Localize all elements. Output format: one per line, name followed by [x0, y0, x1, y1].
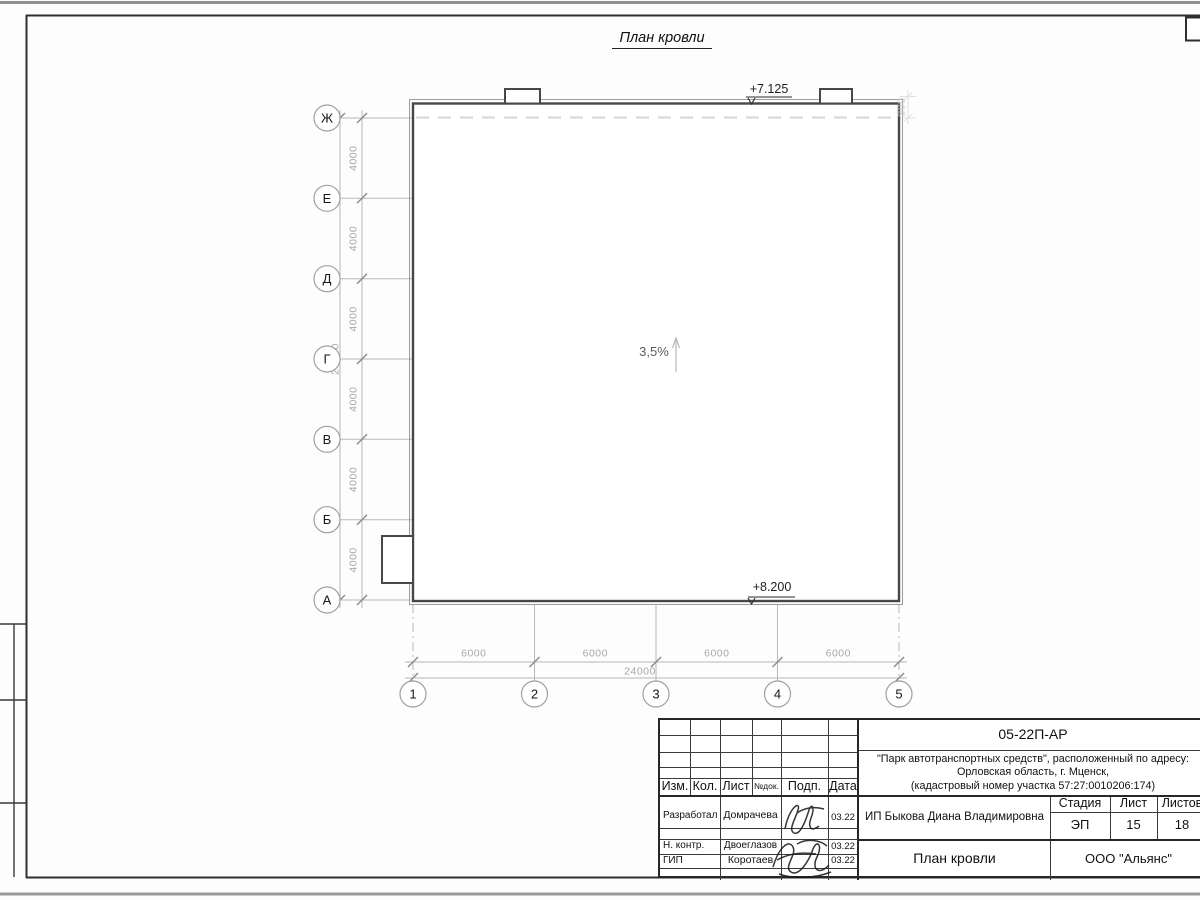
- tb-date-developed: 03.22: [828, 808, 858, 828]
- dim-4000: 4000: [348, 226, 360, 251]
- tb-project-description: "Парк автотранспортных средств", располо…: [859, 750, 1200, 796]
- tb-role-ncontrol: Н. контр.: [660, 839, 720, 854]
- tb-col-ndok: №док.: [752, 778, 781, 795]
- title-block: Изм. Кол. Лист №док. Подп. Дата 05-22П-А…: [658, 718, 1200, 878]
- tb-sheet-title: План кровли: [859, 840, 1050, 878]
- elevation-top-value: +7.125: [750, 82, 789, 96]
- tb-line: [660, 767, 858, 768]
- dim-6000: 6000: [461, 648, 486, 660]
- tb-sheets-label: Листов: [1157, 796, 1200, 812]
- side-projection: [382, 536, 413, 583]
- tb-company: ООО "Альянс": [1050, 840, 1200, 878]
- axis-label: 2: [531, 687, 538, 702]
- tb-line: [660, 752, 858, 753]
- dim-4000: 4000: [348, 467, 360, 492]
- tb-col-list: Лист: [720, 778, 752, 795]
- tb-doc-number: 05-22П-АР: [859, 720, 1200, 750]
- axis-label: А: [323, 593, 332, 608]
- tb-sheet-value: 15: [1110, 812, 1157, 839]
- project-line-1: "Парк автотранспортных средств", располо…: [877, 753, 1189, 766]
- bottom-dimension-lines: [405, 604, 907, 681]
- slope-value: 3,5%: [639, 344, 669, 359]
- dim-6000: 6000: [704, 648, 729, 660]
- dim-4000: 4000: [348, 547, 360, 572]
- project-line-2: Орловская область, г. Мценск,: [957, 766, 1109, 779]
- tb-role-developed: Разработал: [660, 804, 720, 828]
- dim-6000: 6000: [826, 648, 851, 660]
- elevation-bottom-value: +8.200: [753, 580, 792, 594]
- signature-developed: [778, 798, 830, 838]
- axis-label: Е: [323, 191, 332, 206]
- dim-4000: 4000: [348, 146, 360, 171]
- axis-label: 4: [774, 687, 781, 702]
- roof-vent-left: [505, 89, 540, 104]
- signature-gip: [768, 834, 840, 880]
- axis-label: Г: [323, 352, 330, 367]
- roof-vent-right: [820, 89, 852, 104]
- tb-name-developed: Домрачева: [720, 804, 781, 828]
- tb-col-kol: Кол.: [690, 778, 720, 795]
- elevation-mark-top: +7.125: [746, 82, 792, 104]
- column-axis-markers: 1 2 3 4 5: [400, 681, 912, 707]
- tb-col-podp: Подп.: [781, 778, 828, 795]
- axis-label: Б: [323, 512, 332, 527]
- axis-label: В: [323, 432, 332, 447]
- axis-label: 3: [652, 687, 659, 702]
- tb-sheets-value: 18: [1157, 812, 1200, 839]
- drawing-title: План кровли: [612, 30, 712, 49]
- tb-stage-label: Стадия: [1050, 796, 1110, 812]
- tb-line: [660, 735, 858, 736]
- tb-sheet-label: Лист: [1110, 796, 1157, 812]
- tb-client: ИП Быкова Диана Владимировна: [859, 796, 1050, 839]
- row-axis-markers: Ж Е Д Г В Б А: [314, 105, 340, 613]
- tb-col-izm: Изм.: [660, 778, 690, 795]
- tb-col-data: Дата: [828, 778, 858, 795]
- axis-label: Д: [323, 271, 332, 286]
- axis-label: Ж: [321, 111, 333, 126]
- dim-4000: 4000: [348, 306, 360, 331]
- parapet-dim-value: 300: [896, 97, 908, 116]
- axis-label: 5: [895, 687, 902, 702]
- left-dimension-lines: [336, 110, 412, 608]
- tb-stage-value: ЭП: [1050, 812, 1110, 839]
- dim-24000-horizontal: 24000: [624, 666, 656, 678]
- dim-6000: 6000: [583, 648, 608, 660]
- dim-4000: 4000: [348, 387, 360, 412]
- left-attribute-table: [0, 624, 26, 877]
- frame-corner-box: [1186, 18, 1200, 41]
- axis-label: 1: [409, 687, 416, 702]
- project-line-3: (кадастровый номер участка 57:27:0010206…: [911, 780, 1155, 793]
- tb-role-gip: ГИП: [660, 854, 720, 868]
